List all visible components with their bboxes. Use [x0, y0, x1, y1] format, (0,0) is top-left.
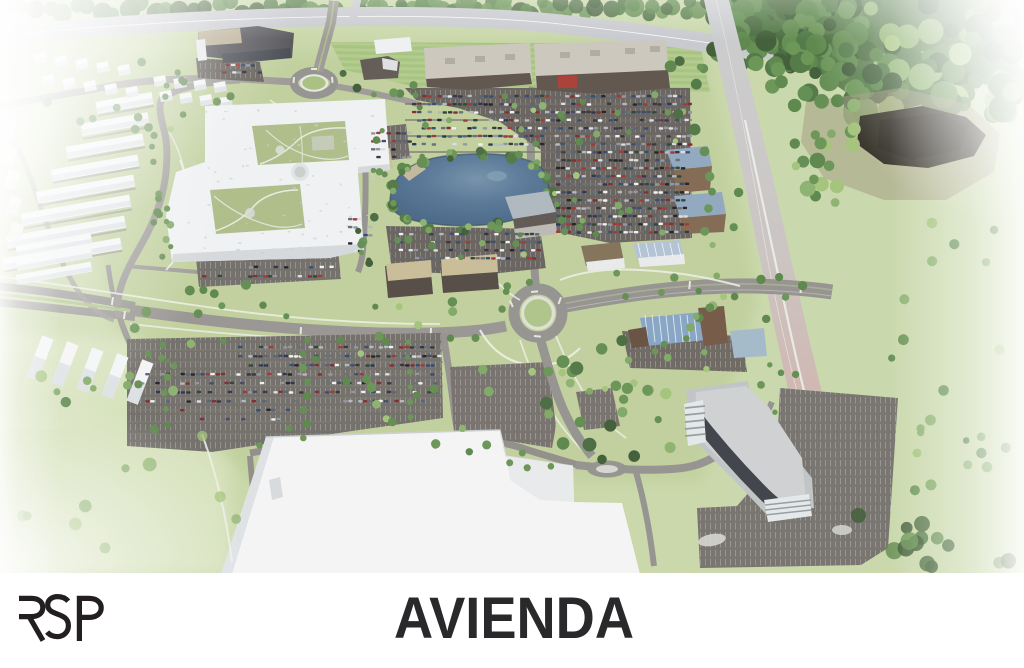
svg-text:AVIENDA: AVIENDA	[394, 586, 634, 651]
